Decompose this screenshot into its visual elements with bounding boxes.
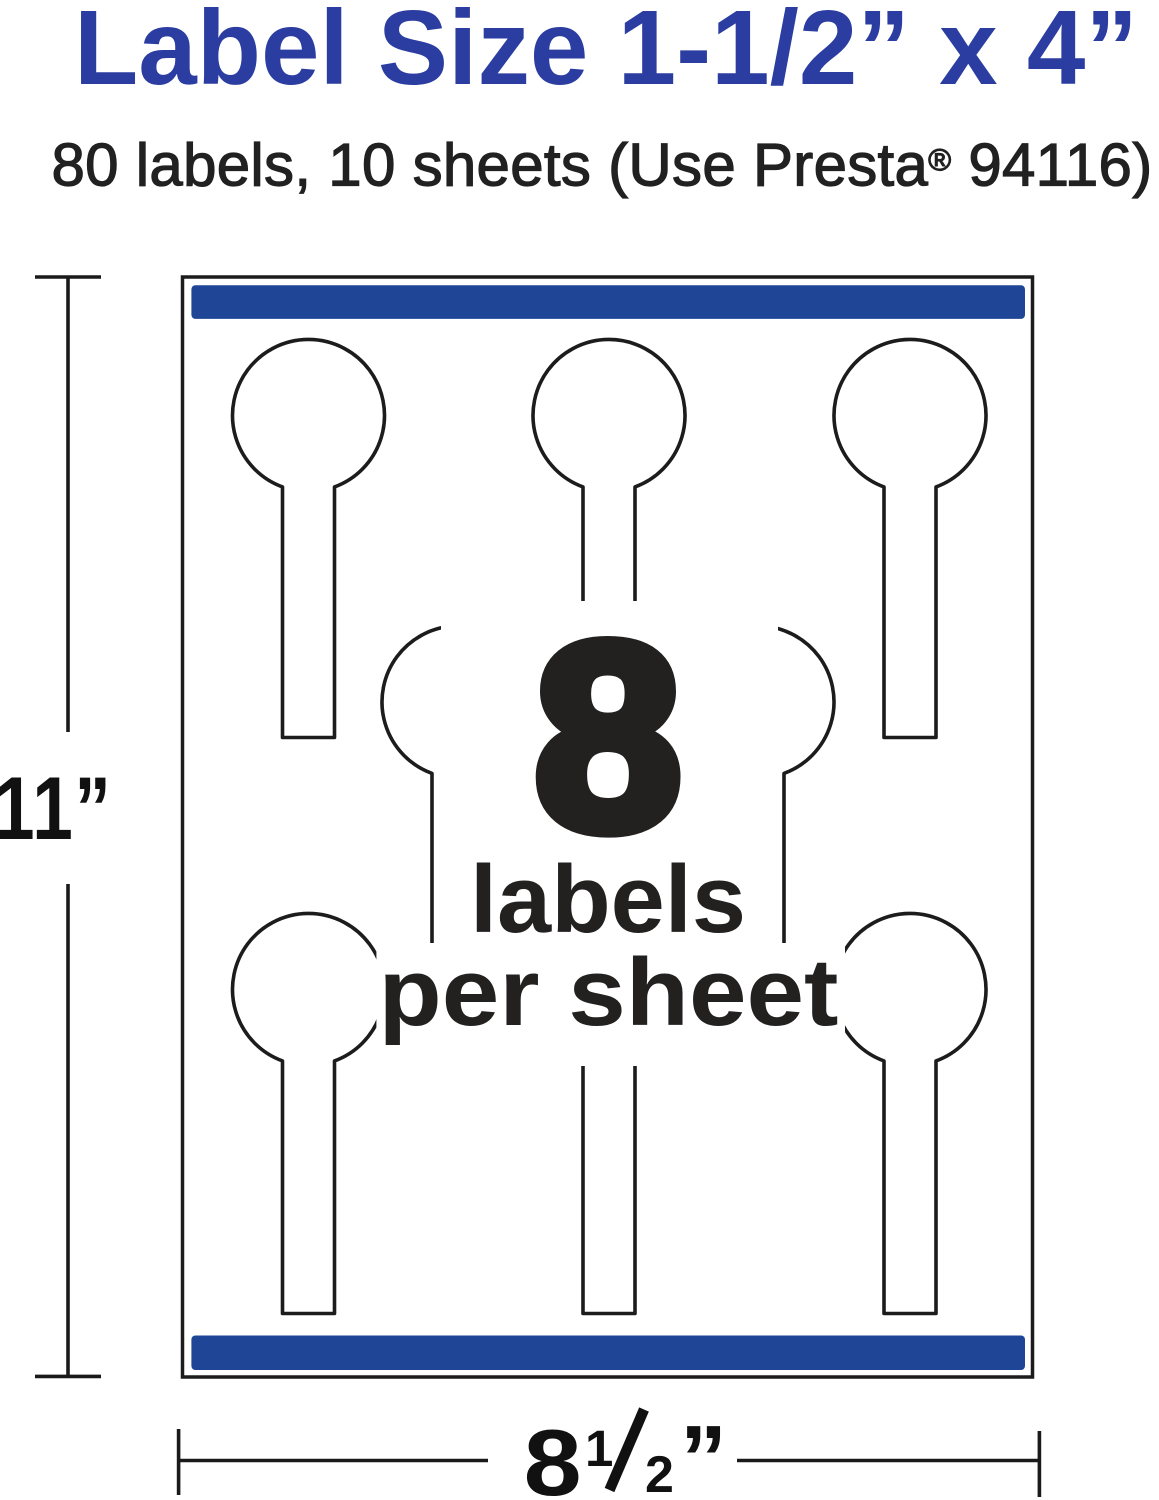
svg-text:8: 8 (524, 1410, 582, 1500)
svg-text:labels: labels (470, 846, 746, 953)
svg-text:8: 8 (534, 589, 681, 885)
svg-text:per sheet: per sheet (379, 939, 839, 1046)
svg-text:2: 2 (645, 1446, 674, 1500)
svg-text:”: ” (680, 1406, 727, 1500)
svg-text:Label Size 1-1/2” x 4”: Label Size 1-1/2” x 4” (74, 0, 1138, 107)
svg-text:11”: 11” (0, 759, 113, 859)
svg-text:80 labels, 10 sheets (Use Pres: 80 labels, 10 sheets (Use Presta® 94116) (51, 132, 1152, 199)
svg-text:1: 1 (585, 1420, 613, 1477)
